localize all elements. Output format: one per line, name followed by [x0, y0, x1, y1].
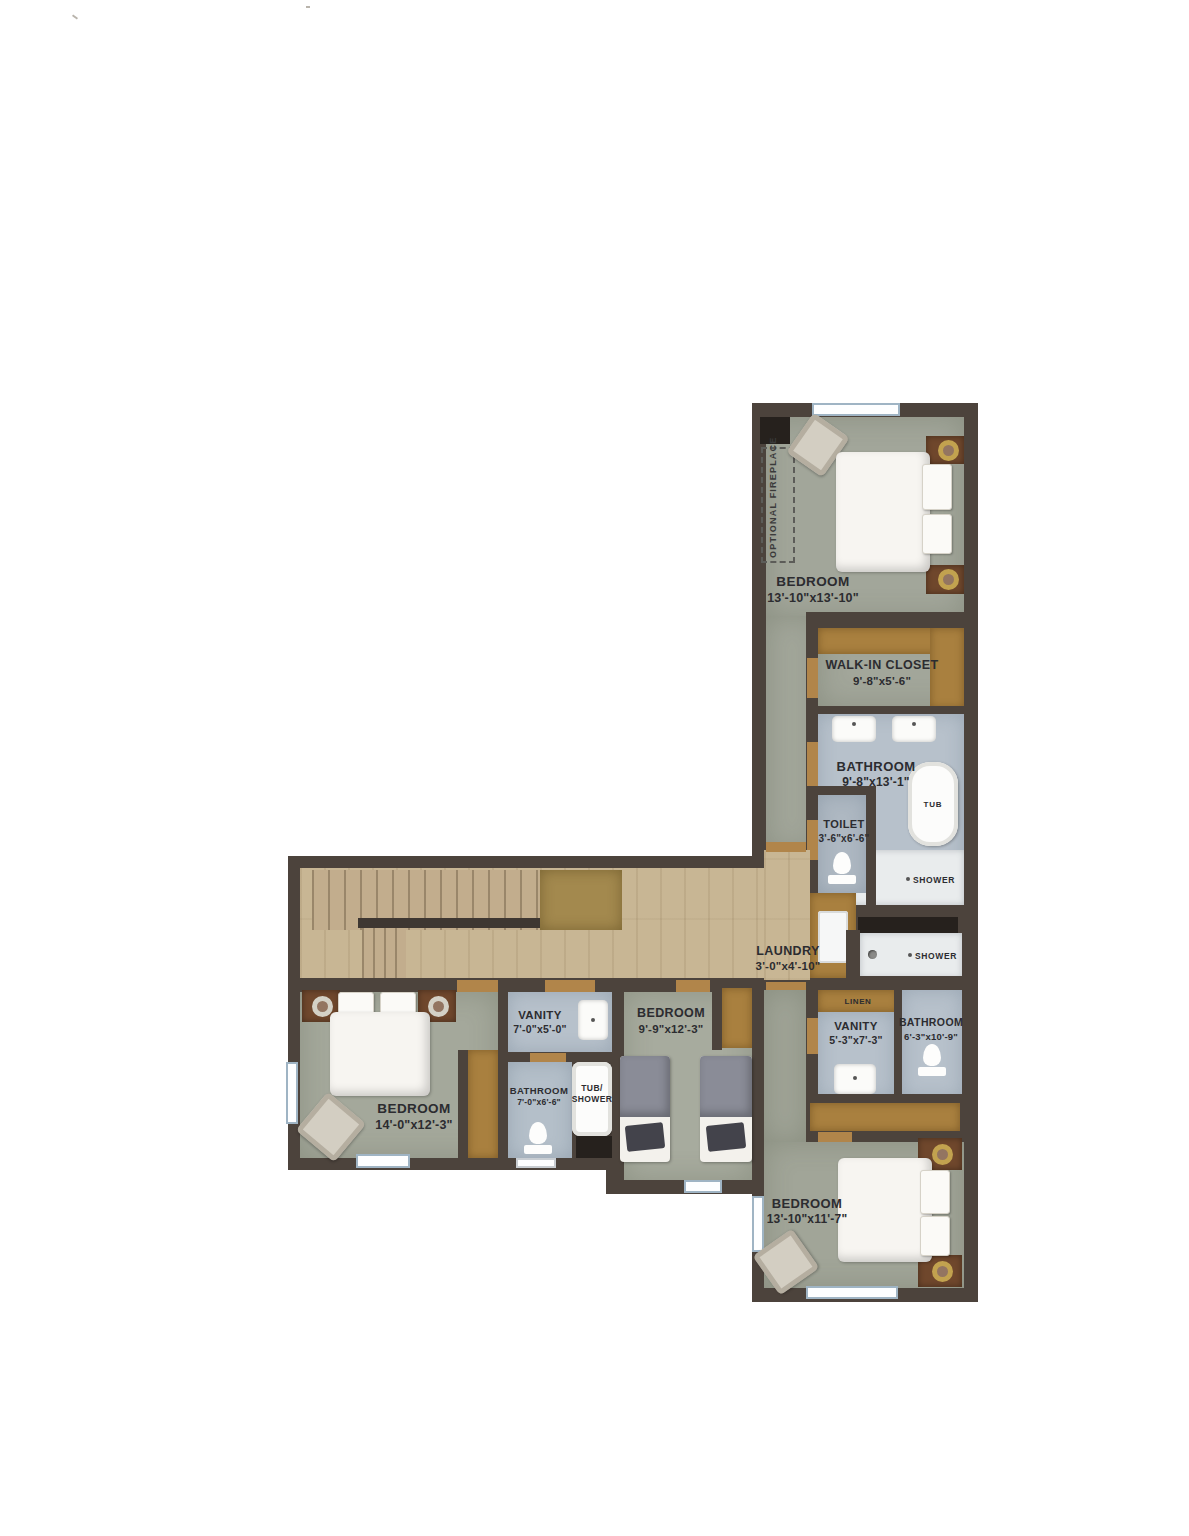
lamp: [932, 1144, 953, 1165]
shower-label: SHOWER: [913, 875, 955, 885]
tub-shower-label: SHOWER: [572, 1094, 613, 1104]
wall: [894, 990, 902, 1078]
optional-fireplace-zone: [761, 447, 795, 563]
closet-door: [807, 658, 818, 698]
sink: [832, 716, 876, 742]
tub-shower-label: TUB/: [581, 1083, 602, 1093]
lamp: [938, 569, 959, 590]
bed: [836, 452, 930, 572]
linen-label: LINEN: [845, 997, 872, 1006]
window: [286, 1062, 298, 1124]
bathroom-middle-door: [530, 1053, 566, 1062]
faucet: [912, 722, 916, 726]
bedroom-middle-door: [676, 980, 710, 992]
lamp: [932, 1261, 953, 1282]
room-dims: 6'-3"x10'-9": [904, 1031, 958, 1042]
wall: [818, 706, 964, 714]
scanned-floor-plan-page: OPTIONAL FIREPLACE BEDROOM 13'-10"x13'-1…: [0, 0, 1189, 1536]
room-label: BEDROOM: [772, 1196, 843, 1211]
wall: [846, 976, 978, 990]
scan-speck: [306, 6, 310, 8]
room-label: BEDROOM: [776, 574, 849, 589]
pillow: [922, 464, 952, 510]
sink: [892, 716, 936, 742]
lower-corridor: [764, 990, 806, 1142]
room-dims: 5'-3"x7'-3": [829, 1034, 882, 1046]
lamp: [428, 996, 449, 1017]
shower-head: [868, 950, 877, 959]
room-label: BEDROOM: [377, 1101, 450, 1116]
room-dims: 7'-0"x5'-0": [513, 1023, 566, 1035]
tub-surround: [576, 1136, 612, 1158]
room-label: BATHROOM: [899, 1016, 963, 1028]
window: [516, 1158, 556, 1168]
bedroom-bottom-closet: [810, 1103, 960, 1131]
room-label: WALK-IN CLOSET: [825, 658, 938, 672]
window: [356, 1154, 410, 1168]
toilet-icon: [918, 1044, 946, 1076]
optional-fireplace-label: OPTIONAL FIREPLACE: [768, 458, 778, 558]
room-dims: 14'-0"x12'-3": [375, 1118, 452, 1132]
room-dims: 9'-8"x5'-6": [853, 675, 911, 687]
hall-threshold: [766, 842, 806, 852]
room-dims: 3'-0"x4'-10": [756, 960, 821, 972]
pillow: [920, 1216, 950, 1256]
room-label: VANITY: [518, 1009, 562, 1021]
room-dims: 13'-10"x11'-7": [767, 1212, 848, 1226]
window: [812, 403, 900, 416]
vanity-right-door: [807, 1018, 818, 1054]
room-dims: 9'-9"x12'-3": [639, 1023, 704, 1035]
stair-railing: [358, 918, 540, 928]
room-dims: 13'-10"x13'-10": [767, 591, 859, 605]
shower-label: SHOWER: [915, 951, 957, 961]
wall: [712, 984, 722, 1050]
dark-closet: [858, 917, 958, 933]
lamp: [938, 440, 959, 461]
wall: [810, 1094, 964, 1103]
tub-label: TUB: [924, 800, 943, 809]
faucet: [591, 1018, 595, 1022]
wall: [818, 612, 964, 628]
toilet-icon: [828, 852, 856, 884]
lamp: [312, 996, 333, 1017]
drain: [908, 953, 912, 957]
twin-bed: [700, 1056, 752, 1162]
wall: [846, 930, 860, 980]
window: [806, 1286, 898, 1299]
bed: [330, 1012, 430, 1096]
stairs-lower-run: [362, 928, 406, 978]
pillow: [922, 514, 952, 554]
twin-bed: [620, 1056, 670, 1162]
stairs-landing: [540, 870, 622, 930]
room-label: TOILET: [823, 818, 864, 830]
pillow: [920, 1170, 950, 1214]
room-label: LAUNDRY: [756, 944, 819, 958]
vanity-left-door: [545, 980, 595, 992]
wall: [866, 795, 876, 907]
room-dims: 7'-0"x6'-6": [517, 1097, 561, 1107]
toilet-icon: [524, 1122, 552, 1154]
wall: [812, 786, 876, 795]
window: [684, 1180, 722, 1193]
washer: [818, 911, 848, 963]
bed: [838, 1158, 932, 1262]
wall: [458, 1050, 468, 1158]
drain: [906, 877, 910, 881]
closet-door: [818, 1132, 852, 1142]
room-dims: 3'-6"x6'-6": [819, 833, 870, 844]
scan-speck: [72, 14, 78, 19]
bedroom-left-door: [457, 980, 499, 992]
room-label: BATHROOM: [837, 759, 916, 774]
room-label: BATHROOM: [510, 1085, 568, 1096]
room-label: VANITY: [834, 1020, 878, 1032]
faucet: [853, 1076, 857, 1080]
window: [752, 1196, 764, 1252]
faucet: [852, 722, 856, 726]
room-label: BEDROOM: [637, 1006, 705, 1020]
bathroom-door: [807, 742, 818, 786]
bedroom-left-closet: [468, 1050, 498, 1158]
bedroom-middle-closet: [722, 988, 752, 1048]
wall: [498, 978, 508, 1160]
